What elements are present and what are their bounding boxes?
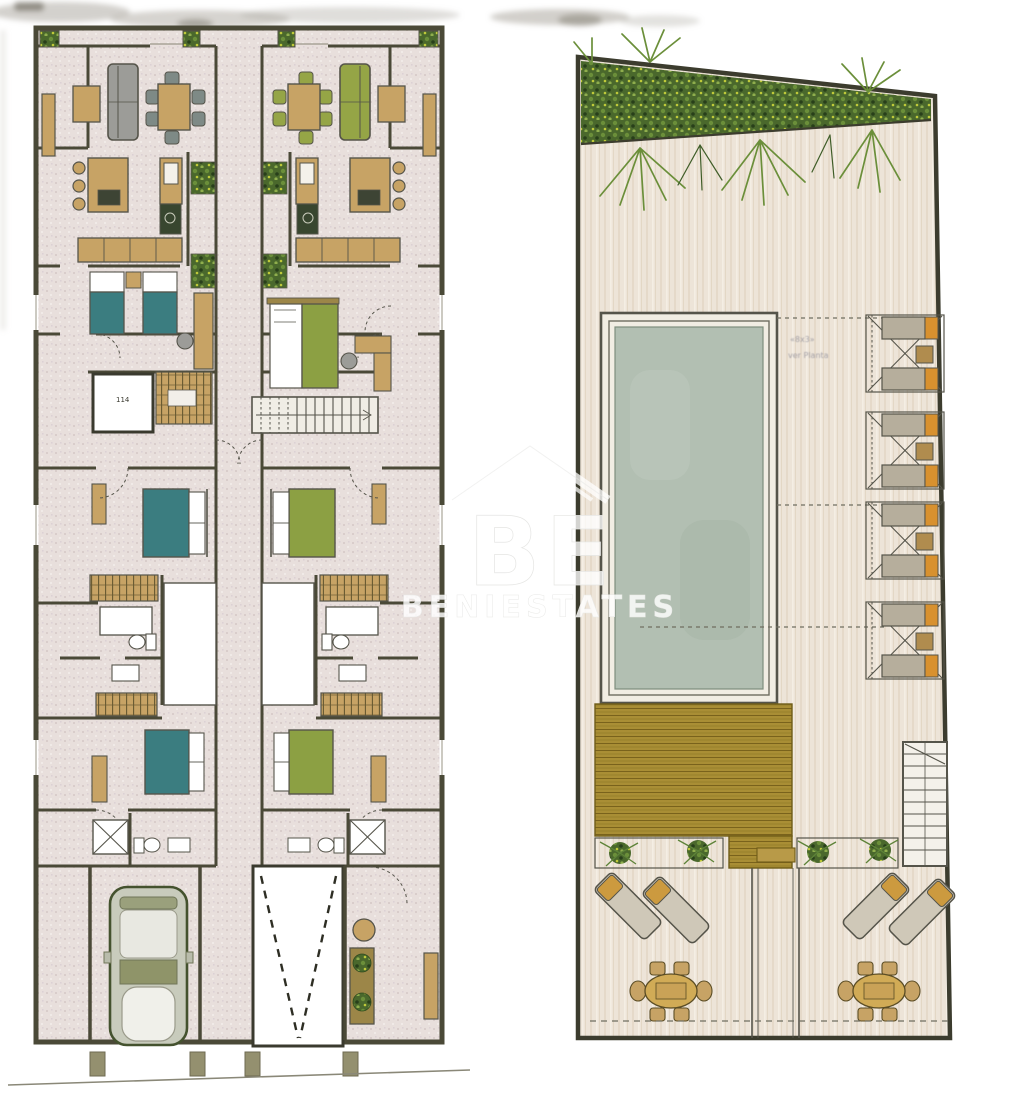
walkway-step: [757, 848, 795, 862]
side-table: [916, 346, 933, 363]
pool-annotation-2: ver Planta: [788, 351, 829, 360]
elevator-label: 114: [116, 396, 130, 404]
elevator: 114: [93, 374, 153, 432]
twin-bed: [90, 292, 124, 334]
watermark-name: BENIESTATES: [401, 590, 679, 625]
sun-lounger: [882, 368, 925, 390]
roof-terrace-plan: «8x3» ver Planta: [574, 28, 957, 1038]
car-ramp: [253, 866, 343, 1046]
ground-floor-plan: 114: [8, 28, 470, 1085]
desk: [355, 336, 391, 353]
car: [104, 887, 193, 1045]
headboard: [267, 298, 339, 304]
bench: [424, 953, 438, 1019]
central-staircase: [252, 397, 378, 433]
stair-flight: [903, 742, 947, 866]
desk-chair: [177, 333, 193, 349]
lounger-pillow: [925, 317, 938, 339]
bed: [302, 304, 338, 388]
twin-bed: [143, 292, 177, 334]
desk: [194, 293, 213, 369]
swimming-pool: [601, 313, 777, 703]
plant-icon: [353, 993, 371, 1011]
street-posts: [90, 1052, 358, 1076]
floor-plan-sheet: 114: [0, 0, 1011, 1095]
nightstand: [126, 272, 141, 288]
pool-annotation-1: «8x3»: [790, 335, 815, 344]
plant-icon: [353, 954, 371, 972]
flower-pot: [353, 919, 375, 941]
lounger-pillow: [925, 368, 938, 390]
desk-chair: [341, 353, 357, 369]
sun-lounger: [882, 317, 925, 339]
ground-line: [8, 1070, 470, 1085]
desk: [374, 353, 391, 391]
